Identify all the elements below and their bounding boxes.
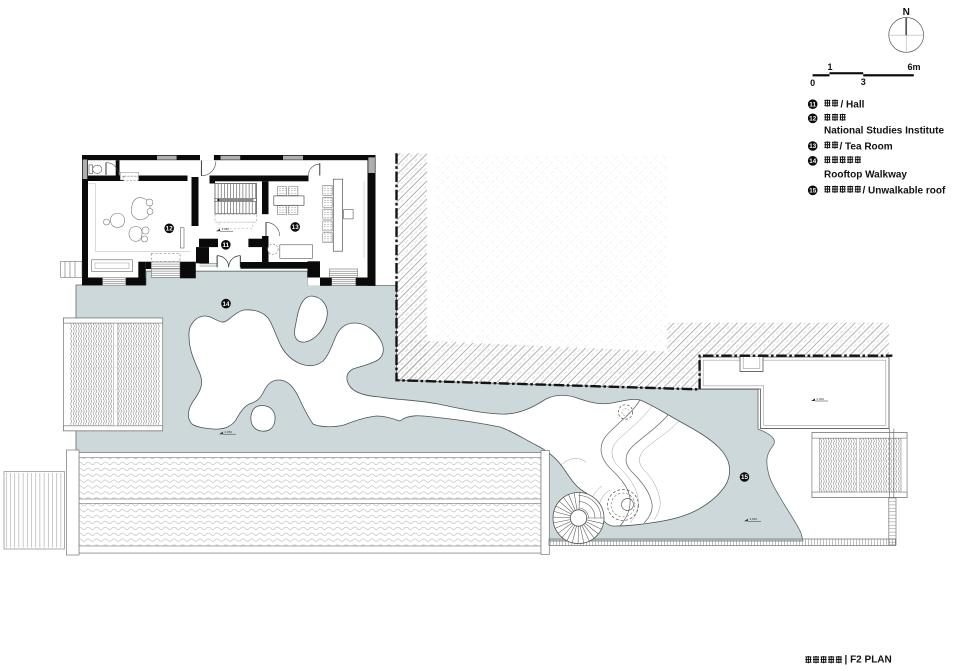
svg-text:2.302: 2.302 — [817, 397, 825, 401]
svg-text:National Studies Institute: National Studies Institute — [824, 126, 944, 137]
svg-text:12: 12 — [166, 226, 173, 233]
svg-text:11: 11 — [809, 101, 816, 108]
svg-text:1: 1 — [827, 62, 832, 72]
svg-text:3.050: 3.050 — [750, 517, 758, 521]
svg-text:| F2 PLAN: | F2 PLAN — [845, 654, 892, 665]
svg-text:13: 13 — [292, 224, 299, 231]
svg-text:15: 15 — [809, 188, 816, 195]
svg-text:Rooftop Walkway: Rooftop Walkway — [824, 169, 907, 180]
svg-text:11: 11 — [223, 242, 230, 249]
svg-text:/ Unwalkable roof: / Unwalkable roof — [863, 186, 946, 197]
svg-text:3.050: 3.050 — [225, 430, 233, 434]
svg-text:1.950: 1.950 — [222, 227, 230, 231]
svg-text:14: 14 — [223, 301, 230, 308]
svg-text:/ Hall: / Hall — [841, 100, 865, 111]
svg-text:15: 15 — [741, 474, 748, 481]
svg-text:3: 3 — [861, 77, 866, 87]
svg-text:N: N — [903, 7, 910, 18]
svg-text:/ Tea Room: / Tea Room — [840, 141, 893, 152]
svg-text:0: 0 — [810, 78, 815, 88]
svg-text:12: 12 — [809, 116, 816, 123]
svg-text:14: 14 — [809, 158, 816, 165]
svg-text:13: 13 — [809, 143, 816, 150]
svg-text:6m: 6m — [907, 62, 920, 72]
